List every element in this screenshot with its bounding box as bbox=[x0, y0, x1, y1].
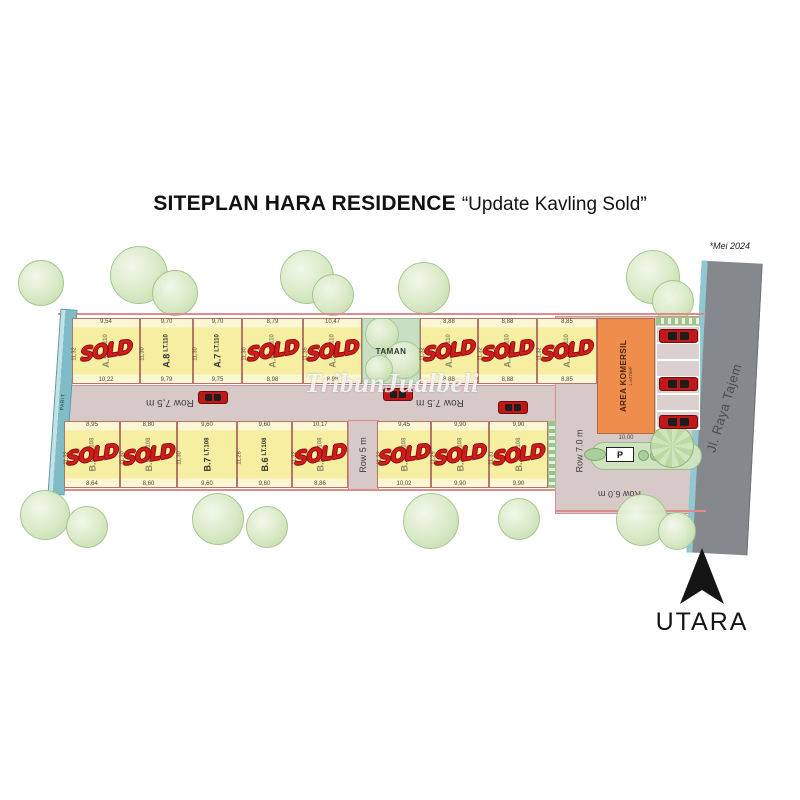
plot-lt: LT.110 bbox=[164, 334, 170, 352]
tree bbox=[312, 274, 354, 316]
plot-B9: 8,95 11,32 B.9LT.108 SOLD 8,64 bbox=[64, 421, 120, 488]
plot-A6: 8,79 11,30 A.6LT.110 SOLD 8,98 bbox=[242, 318, 303, 384]
tree bbox=[192, 493, 244, 545]
tree bbox=[658, 512, 696, 550]
page-title: SITEPLAN HARA RESIDENCE“Update Kavling S… bbox=[0, 192, 800, 216]
plot-B2: 9,90 11,29 B.2LT.108 SOLD 9,90 bbox=[431, 421, 489, 488]
tree bbox=[18, 260, 64, 306]
road-label-row75-left: Row 7,5 m bbox=[146, 397, 194, 408]
car bbox=[498, 401, 528, 414]
dim-top: 9,70 bbox=[141, 319, 192, 325]
road-label-row5: Row 5 m bbox=[358, 437, 368, 473]
dim-bottom: 9,60 bbox=[238, 481, 291, 487]
plot-id: A.7 bbox=[213, 354, 223, 368]
road-label-row7: Row 7.0 m bbox=[574, 429, 584, 472]
sold-stamp: SOLD bbox=[431, 417, 490, 491]
car bbox=[659, 415, 698, 429]
dim-top: 9,70 bbox=[194, 319, 241, 325]
plot-A7: 9,70 11,30 A.7LT.110 9,75 bbox=[193, 318, 242, 384]
sold-stamp: SOLD bbox=[292, 418, 349, 492]
watermark: TribunJualbeli bbox=[305, 368, 479, 399]
plot-A9: 9,54 11,32 A.9LT.110 SOLD 10,22 bbox=[72, 318, 140, 384]
sold-stamp: SOLD bbox=[489, 417, 549, 491]
commercial-label-text: AREA KOMERSIL bbox=[619, 340, 628, 412]
north-arrow-icon bbox=[676, 548, 728, 606]
hedge-strip bbox=[656, 317, 700, 325]
plot-id: B.6 bbox=[260, 457, 270, 471]
canal-label: PARIT bbox=[59, 393, 66, 410]
commercial-front-dim: 10,00 bbox=[597, 435, 655, 441]
dim-bottom: 9,60 bbox=[178, 481, 236, 487]
commercial-area: AREA KOMERSIL L.±375M² bbox=[597, 318, 655, 434]
tree bbox=[403, 493, 459, 549]
boundary-line-top bbox=[58, 313, 706, 315]
plot-B7: 9,60 11,30 B.7LT.108 9,60 bbox=[177, 421, 237, 488]
tree bbox=[498, 498, 540, 540]
parking-sign: P bbox=[606, 447, 634, 462]
plot-B1: 9,90 11,31 B.1LT.108 SOLD 9,90 bbox=[489, 421, 548, 488]
north-indicator: UTARA bbox=[650, 548, 754, 637]
sold-stamp: SOLD bbox=[377, 418, 432, 491]
tree bbox=[398, 262, 450, 314]
tree bbox=[20, 490, 70, 540]
car bbox=[659, 377, 698, 391]
plot-B5: 10,17 11,32 B.5LT.108 SOLD 8,86 bbox=[292, 421, 348, 488]
plot-lt: LT.108 bbox=[262, 438, 268, 456]
sold-stamp: SOLD bbox=[72, 314, 141, 389]
sold-stamp: SOLD bbox=[242, 314, 304, 387]
tree bbox=[152, 270, 198, 316]
plot-B3: 9,45 11,32 B.3LT.108 SOLD 10,02 bbox=[377, 421, 431, 488]
dim-bottom: 9,79 bbox=[141, 377, 192, 383]
tree bbox=[66, 506, 108, 548]
highway-label: Jl. Raya Tajem bbox=[703, 362, 744, 454]
plot-id: B.7 bbox=[202, 457, 212, 471]
plot-label: B.7LT.108 bbox=[175, 426, 240, 484]
sold-stamp: SOLD bbox=[120, 418, 178, 492]
sold-stamp: SOLD bbox=[64, 418, 121, 492]
plot-B6: 9,60 11,28 B.6LT.108 9,60 bbox=[237, 421, 292, 488]
title-main: SITEPLAN HARA RESIDENCE bbox=[153, 192, 456, 215]
hedge-strip bbox=[548, 421, 556, 488]
north-label: UTARA bbox=[650, 608, 754, 637]
plot-lt: LT.108 bbox=[204, 438, 210, 456]
plot-id: A.8 bbox=[162, 354, 172, 368]
car bbox=[198, 391, 228, 404]
dim-bottom: 9,75 bbox=[194, 377, 241, 383]
commercial-area-note: L.±375M² bbox=[628, 367, 633, 386]
car bbox=[659, 329, 698, 343]
title-subtitle: “Update Kavling Sold” bbox=[462, 194, 647, 215]
plot-lt: LT.110 bbox=[215, 334, 221, 352]
plot-B8: 8,80 11,30 B.8LT.108 SOLD 8,60 bbox=[120, 421, 177, 488]
date-note: *Mei 2024 bbox=[630, 241, 750, 251]
tree bbox=[650, 424, 694, 468]
shrub bbox=[638, 450, 649, 461]
shrub bbox=[584, 448, 606, 461]
tree bbox=[246, 506, 288, 548]
plot-A2: 8,88 11,32 A.2LT.110 SOLD 8,88 bbox=[478, 318, 537, 384]
sold-stamp: SOLD bbox=[478, 314, 538, 387]
